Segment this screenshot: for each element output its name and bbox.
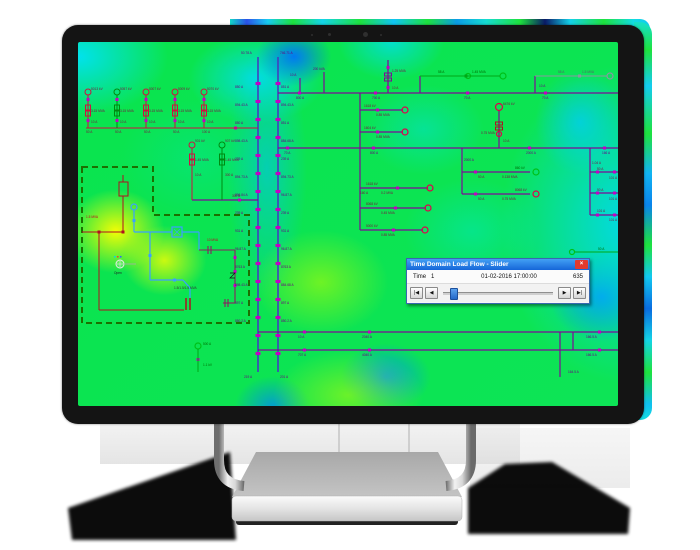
diagram-label: 860 kV [515,166,526,170]
diagram-label: 3.15 MVA [120,109,135,113]
diagram-label: 201 A [280,375,289,379]
diagram-label: 1618 kV [366,182,379,186]
diagram-label: 10 A [392,86,399,90]
diagram-label: 160 A [360,191,369,195]
timestamp: 01-02-2016 17:00:00 [453,274,565,280]
diagram-label: 707 A [298,353,307,357]
diagram-label: 884.68 A [281,139,294,143]
close-icon[interactable]: × [575,260,588,269]
diagram-label: 5009 kV [178,87,191,91]
step-forward-button[interactable]: ▶ [558,287,571,299]
diagram-label: 0.85 MVA [376,135,391,139]
slider-track [443,292,553,295]
transformer-symbols [385,73,503,130]
diagram-label: 166.5 A [586,335,598,339]
diagram-label: 50 A [173,130,180,134]
motor-symbol [114,256,136,268]
diagram-label: 58 A [438,70,445,74]
diagram-label: 1.04 A [592,161,602,165]
diagram-label: 239 A [235,157,244,161]
dialog-titlebar[interactable]: Time Domain Load Flow - Slider × [407,259,589,270]
diagram-label: 898.43 A [235,283,248,287]
monitor-bezel: 5013 kV5057 kV5007 kV5009 kV5070 kV3.15 … [62,25,644,424]
diagram-label: 239 A [281,211,290,215]
diagram-label: 200 kVA [313,67,326,71]
diagram-label: 5070 kV [207,87,220,91]
diagram-label: 896.84 A [235,193,248,197]
diagram-label: 1.5 MVA [582,70,595,74]
diagram-label: 0.75 MVA [502,197,517,201]
screen: 5013 kV5057 kV5007 kV5009 kV5070 kV3.15 … [78,42,618,406]
diagram-label: 1618 kV [364,104,377,108]
diagram-label: 850 A [235,85,244,89]
diagram-label: 50 A [478,197,485,201]
diagram-label: 6476 kV [503,102,516,106]
diagram-label: 10 A [290,73,297,77]
diagram-label: 50 A [86,130,93,134]
diagram-label: 219 A [244,375,253,379]
time-label: Time [413,274,431,280]
diagram-label: 3.15 MVA [149,109,164,113]
diagram-label: 897 A [281,301,290,305]
generator-feeders [85,89,258,200]
relay-annotation [230,273,235,278]
diagram-label: 50 A [478,175,485,179]
monitor-stand [0,410,700,550]
diagram-label: 901 kV [195,139,206,143]
diagram-label: 96.87 A [281,247,293,251]
diagram-label: 10 A [207,120,214,124]
diagram-label: 50 A [597,188,604,192]
diagram-label: 166 A [602,151,611,155]
diagram-label: 851 A [281,121,290,125]
diagram-label: 894.43 A [281,103,294,107]
diagram-label: 50 A [115,130,122,134]
slider-thumb[interactable] [450,288,458,300]
diagram-label: 164.5 A [568,370,580,374]
diagram-label: 850 A [235,121,244,125]
diagram-label: 0.138 MVA [502,175,518,179]
diagram-label: 746.71 A [280,51,293,55]
diagram-label: 10 A [91,120,98,124]
diagram-label: 8763 A [281,265,292,269]
diagram-label: 10 A [298,335,305,339]
diagram-label: 8068 kV [515,188,528,192]
diagram-label: 894.73 A [281,175,294,179]
dialog-title: Time Domain Load Flow - Slider [410,261,508,268]
diagram-label: 2000 A [464,158,475,162]
diagram-label: 1.5 MVA [86,215,99,219]
diagram-label: 0.75 MVA [481,131,496,135]
diagram-label: 10 A [120,120,127,124]
diagram-label: 1604 kV [364,126,377,130]
diagram-label: 500 A [203,342,212,346]
diagram-label: 50 A [598,247,605,251]
diagram-label: 3.15 MVA [207,109,222,113]
diagram-label: 58 A [558,70,565,74]
step-first-button[interactable]: |◀ [410,287,423,299]
stand-base-top [232,452,462,497]
diagram-label: 101 A [609,218,618,222]
diagram-label: 931 A [281,229,290,233]
main-bus-vertical [258,57,278,372]
diagram-label: 4040 A [362,353,373,357]
sensor-dot [328,33,331,36]
monitor-shadow-left [68,452,236,540]
sensor-dot [380,34,382,36]
diagram-label: 5000 kV [366,224,379,228]
diagram-label: 1.45 MVA [195,158,210,162]
time-slider-dialog: Time Domain Load Flow - Slider × Time 1 … [406,258,590,304]
time-slider[interactable] [443,287,553,299]
diagram-label: 50 A [597,167,604,171]
diagram-label: 1.45 MVA [472,70,487,74]
camera-icon [363,32,368,37]
diagram-label: 10 MVA [207,238,219,242]
diagram-label: 239 A [281,157,290,161]
step-last-button[interactable]: ▶| [573,287,586,299]
diagram-label: 5007 kV [149,87,162,91]
diagram-label: 800 A [296,96,305,100]
diagram-label: Open [114,271,122,275]
diagram-label: 101 A [609,176,618,180]
total-steps: 635 [565,274,583,280]
diagram-label: 0.85 MVA [376,113,391,117]
sensor-dot [311,34,313,36]
dialog-slider-row: |◀ ◀ ▶ ▶| [407,284,589,302]
diagram-label: 8763 A [235,265,246,269]
diagram-label: 0.85 MVA [381,233,396,237]
diagram-label: 0.45 MVA [381,211,396,215]
step-back-button[interactable]: ◀ [425,287,438,299]
diagram-label: 894.73 A [235,175,248,179]
diagram-label: 70 A [542,96,549,100]
oneline-diagram: 5013 kV5057 kV5007 kV5009 kV5070 kV3.15 … [78,42,618,406]
stand-base-front [232,496,462,521]
diagram-label: 800 A [370,151,379,155]
diagram-label: 1.25 MVA [392,69,407,73]
diagram-label: 10 A [149,120,156,124]
diagram-label: 700 A [372,96,381,100]
diagram-label: 8068 kV [366,202,379,206]
diagram-label: 300 A [225,173,234,177]
diagram-label: 894.43 A [235,103,248,107]
diagram-label: 50.78 A [241,51,253,55]
diagram-label: 931 A [235,229,244,233]
diagram-label: 3.15 MVA [91,109,106,113]
scene: 5013 kV5057 kV5007 kV5009 kV5070 kV3.15 … [0,0,700,550]
diagram-label: 898.43 A [235,139,248,143]
dialog-status-row: Time 1 01-02-2016 17:00:00 635 [407,270,589,284]
diagram-label: 50 A [144,130,151,134]
diagram-label: 897 A [235,301,244,305]
diagram-label: 5057 kV [120,87,133,91]
time-value: 1 [431,274,453,280]
diagram-label: 10 A [539,84,546,88]
diagram-label: 101 A [609,197,618,201]
diagram-label: 850.2 A [235,319,247,323]
diagram-label: 0.2 MVA [381,191,394,195]
dashed-zone-border [82,167,249,323]
diagram-label: 100 A [202,130,211,134]
diagram-label: 10 A [178,120,185,124]
diagram-label: 10 A [195,173,202,177]
diagram-label: 166.5 A [586,353,598,357]
zone-blue-circuit [131,204,199,298]
diagram-label: 2000 A [526,151,537,155]
diagram-label: 3.15 MVA [178,109,193,113]
diagram-label: 5013 kV [91,87,104,91]
diagram-label: 1.1 kV [203,363,213,367]
diagram-label: 884.68 A [281,283,294,287]
diagram-label: 96.87 A [235,247,247,251]
diagram-label: 239 A [235,211,244,215]
diagram-label: 851 A [281,85,290,89]
bus-breaker-ticks [258,82,278,364]
diagram-label: 2040 A [362,335,373,339]
diagram-label: 10 A [503,139,510,143]
zone-purple-circuit [199,246,237,307]
diagram-label: 101 A [597,209,606,213]
diagram-label: 96.87 A [281,193,293,197]
diagram-label: 70 A [464,96,471,100]
diagram-label: 1.5/1.5/1.5 MVA [174,286,197,290]
aux-lines [198,75,618,373]
diagram-label: 850.2 A [281,319,293,323]
diagram-label: 70 A [284,151,291,155]
